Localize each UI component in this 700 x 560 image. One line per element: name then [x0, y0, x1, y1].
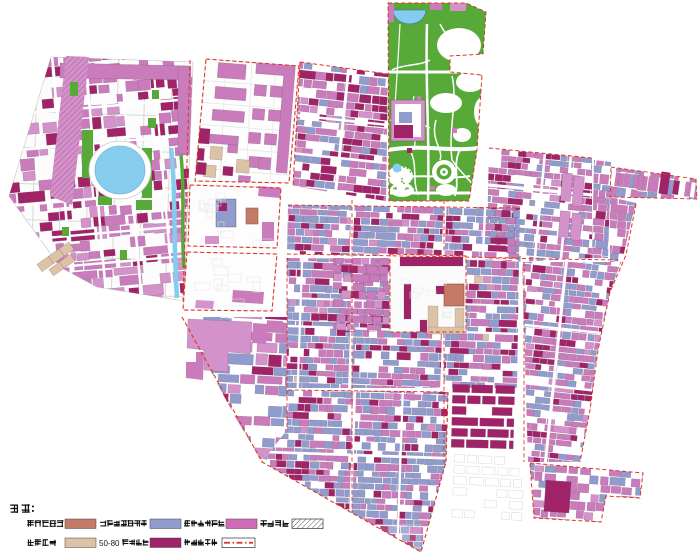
svg-text:50-80: 50-80 [99, 539, 120, 548]
